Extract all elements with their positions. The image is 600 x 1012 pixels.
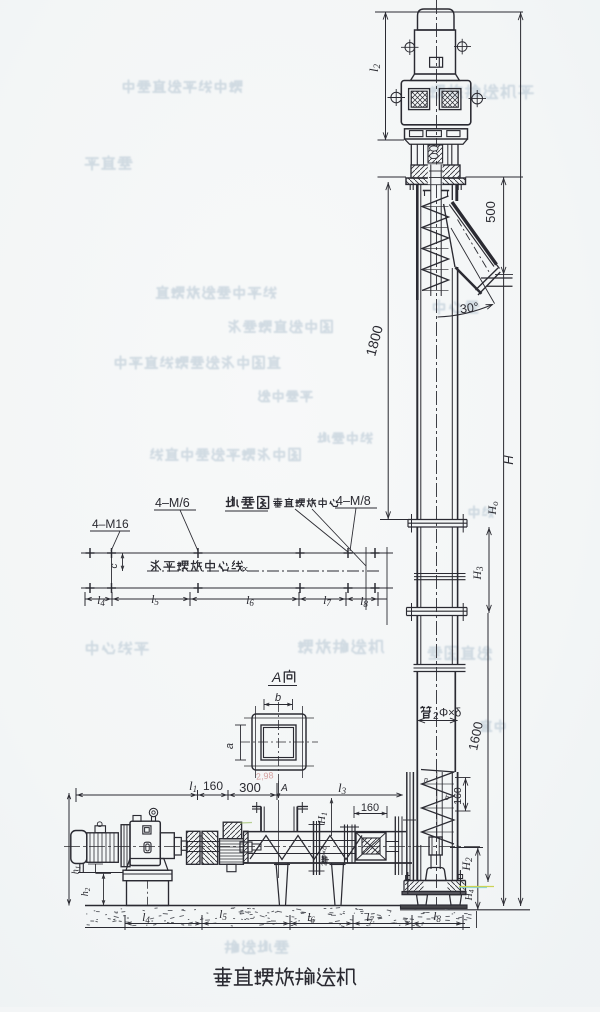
svg-text:160: 160 [452, 787, 464, 805]
svg-text:H: H [501, 455, 516, 465]
svg-text:300: 300 [239, 780, 261, 795]
svg-text:Φ×δ: Φ×δ [439, 708, 461, 720]
svg-text:A: A [280, 783, 288, 794]
svg-text:a: a [224, 743, 236, 749]
svg-text:4–M/8: 4–M/8 [336, 494, 371, 508]
svg-text:2,98: 2,98 [256, 770, 274, 781]
svg-text:4–M16: 4–M16 [92, 517, 129, 531]
svg-text:n: n [424, 777, 428, 784]
svg-text:500: 500 [483, 201, 498, 223]
svg-text:30°: 30° [459, 300, 480, 316]
svg-text:4–M/6: 4–M/6 [155, 496, 190, 510]
svg-text:∝: ∝ [241, 564, 248, 575]
svg-text:b: b [275, 692, 281, 704]
svg-text:c: c [109, 564, 120, 569]
svg-text:b: b [445, 795, 449, 802]
svg-text:160: 160 [203, 779, 223, 793]
svg-text:A: A [271, 669, 281, 685]
svg-text:160: 160 [361, 802, 379, 814]
svg-text:2-Φ×δ: 2-Φ×δ [322, 846, 329, 866]
